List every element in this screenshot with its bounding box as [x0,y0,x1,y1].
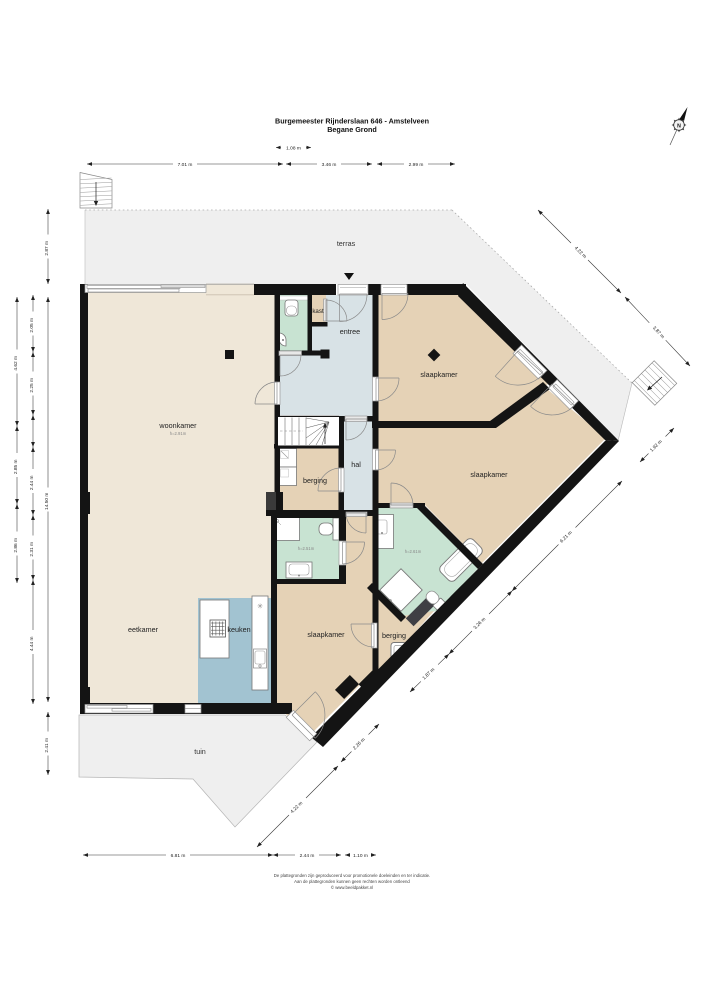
svg-text:2.05 m: 2.05 m [29,318,35,333]
svg-text:2.25 m: 2.25 m [29,378,35,393]
svg-text:1.08 m: 1.08 m [286,145,301,151]
svg-text:h=2.91m: h=2.91m [170,431,187,436]
svg-text:h=2.51m: h=2.51m [298,546,315,551]
svg-text:berging: berging [303,476,327,485]
svg-text:6.81 m: 6.81 m [171,853,186,859]
svg-text:7.01 m: 7.01 m [178,162,193,168]
svg-text:2.31 m: 2.31 m [29,542,35,557]
svg-text:h=2.61m: h=2.61m [405,549,422,554]
svg-text:berging: berging [382,631,406,640]
svg-text:slaapkamer: slaapkamer [420,370,458,379]
svg-text:2.86 m: 2.86 m [13,538,19,553]
svg-text:© www.beeldpakket.nl: © www.beeldpakket.nl [331,885,373,890]
svg-text:4.44 m: 4.44 m [29,636,35,651]
svg-text:3.46 m: 3.46 m [322,162,337,168]
svg-text:2.99 m: 2.99 m [409,162,424,168]
svg-text:slaapkamer: slaapkamer [470,470,508,479]
svg-text:De plattegronden zijn geproduc: De plattegronden zijn geproduceerd voor … [274,873,430,878]
svg-text:✳: ✳ [257,603,263,611]
svg-text:2.85 m: 2.85 m [13,459,19,474]
svg-text:2.87 m: 2.87 m [44,241,50,256]
svg-text:woonkamer: woonkamer [158,421,197,430]
svg-text:14.50 m: 14.50 m [44,493,50,510]
svg-text:terras: terras [337,239,356,248]
svg-text:hal: hal [351,460,361,469]
svg-text:4.62 m: 4.62 m [13,356,19,371]
svg-text:N: N [677,123,681,129]
svg-text:2.44 m: 2.44 m [300,853,315,859]
svg-text:slaapkamer: slaapkamer [307,630,345,639]
svg-text:2.44 m: 2.44 m [29,475,35,490]
svg-text:kast: kast [312,308,324,315]
svg-text:eetkamer: eetkamer [128,625,159,634]
svg-text:entree: entree [340,327,360,336]
svg-text:1.10 m: 1.10 m [353,853,368,859]
svg-text:keuken: keuken [227,625,250,634]
svg-text:2.41 m: 2.41 m [44,738,50,753]
svg-text:Begane Grond: Begane Grond [327,125,377,134]
svg-text:Aan de plattegronden kunnen ge: Aan de plattegronden kunnen geen rechten… [294,879,410,884]
svg-text:tuin: tuin [194,747,206,756]
